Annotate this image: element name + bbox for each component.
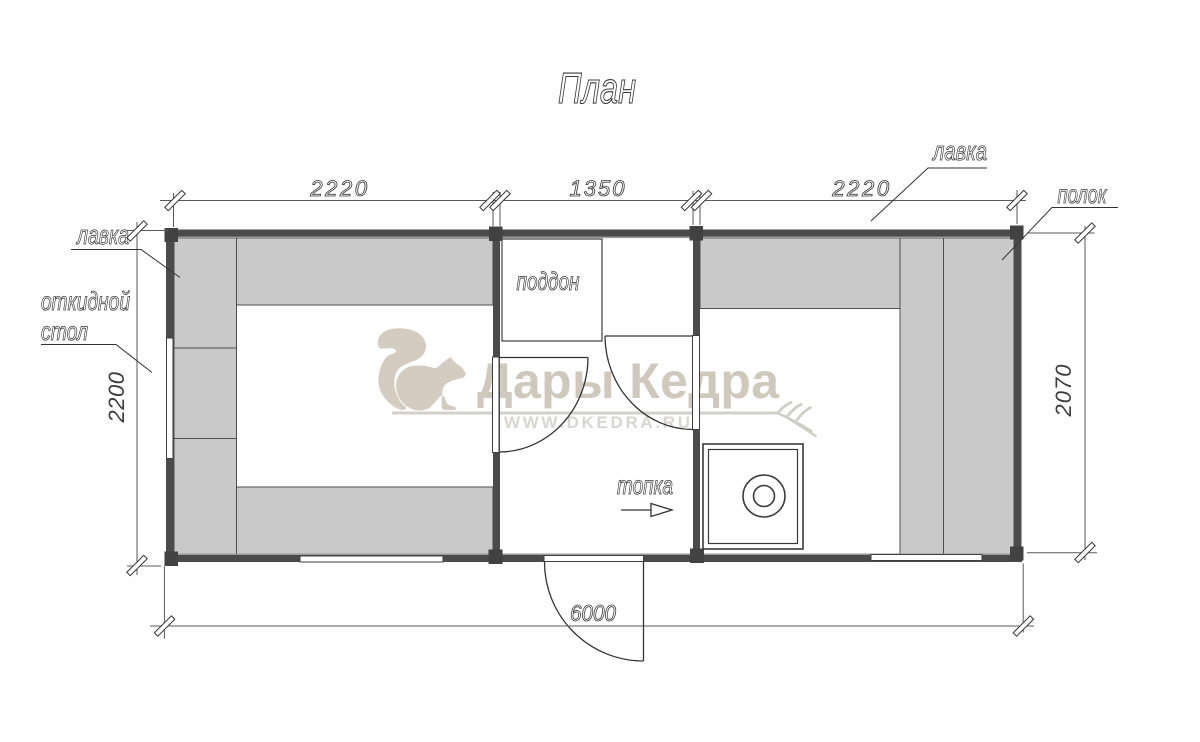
svg-text:План: План: [558, 64, 636, 113]
svg-text:2200: 2200: [104, 371, 129, 423]
svg-text:поддон: поддон: [517, 268, 580, 296]
svg-text:2220: 2220: [309, 176, 369, 201]
svg-text:2070: 2070: [1051, 364, 1076, 418]
svg-text:2220: 2220: [831, 176, 891, 201]
svg-text:Дары Кедра: Дары Кедра: [477, 353, 780, 409]
svg-text:откидной: откидной: [41, 286, 130, 316]
svg-text:WWW.DKEDRA.RU: WWW.DKEDRA.RU: [504, 413, 690, 432]
svg-text:1350: 1350: [570, 176, 627, 201]
svg-text:полок: полок: [1058, 179, 1108, 209]
svg-text:топка: топка: [617, 470, 673, 500]
svg-text:лавка: лавка: [76, 220, 129, 250]
svg-text:6000: 6000: [570, 600, 616, 626]
svg-text:стол: стол: [41, 316, 88, 346]
svg-text:лавка: лавка: [932, 136, 987, 166]
